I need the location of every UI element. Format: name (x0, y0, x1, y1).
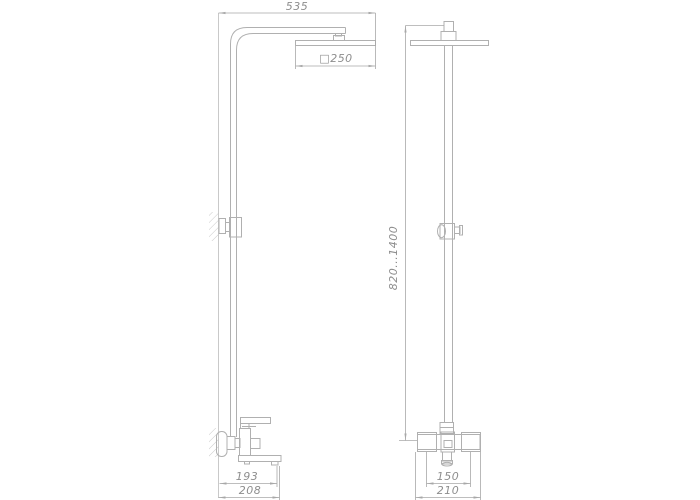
spout-stem (443, 452, 452, 461)
wall-union-nut (227, 437, 235, 450)
dimension-150-label: 150 (437, 470, 460, 483)
riser-pipe-front (445, 46, 453, 424)
shower-head-side (296, 34, 376, 46)
dimension-193-label: 193 (236, 470, 259, 483)
dimension-210-label: 210 (437, 484, 460, 497)
slider-collar (438, 224, 463, 240)
dimension-height-range: 820...1400 (387, 26, 444, 441)
shower-column-technical-drawing: 535 □250 193 208 (0, 0, 700, 500)
mixer-side (217, 418, 282, 466)
mixer-center-detail (444, 441, 452, 448)
spout-tab (245, 462, 250, 465)
wall-hatch-upper (209, 212, 219, 241)
lever-handle (241, 418, 271, 424)
riser-pipe-side (231, 28, 346, 438)
dimension-535-label: 535 (286, 0, 309, 13)
mixer-front (418, 423, 481, 467)
dimension-250-label: □250 (319, 52, 352, 65)
side-view: 535 □250 193 208 (209, 0, 376, 500)
inlet-block-right (462, 433, 481, 452)
spout-aerator (272, 462, 279, 466)
spout (239, 456, 282, 462)
dimension-height-range-label: 820...1400 (387, 226, 400, 290)
dimension-535: 535 (219, 0, 376, 13)
diverter-knob (251, 439, 261, 449)
dimension-208-label: 208 (239, 484, 262, 497)
drawing-page: 535 □250 193 208 (0, 0, 700, 500)
inlet-block-left (418, 433, 437, 452)
mixer-body (240, 429, 251, 456)
front-view: 820...1400 150 210 (387, 22, 489, 500)
dimension-150: 150 (427, 452, 471, 487)
